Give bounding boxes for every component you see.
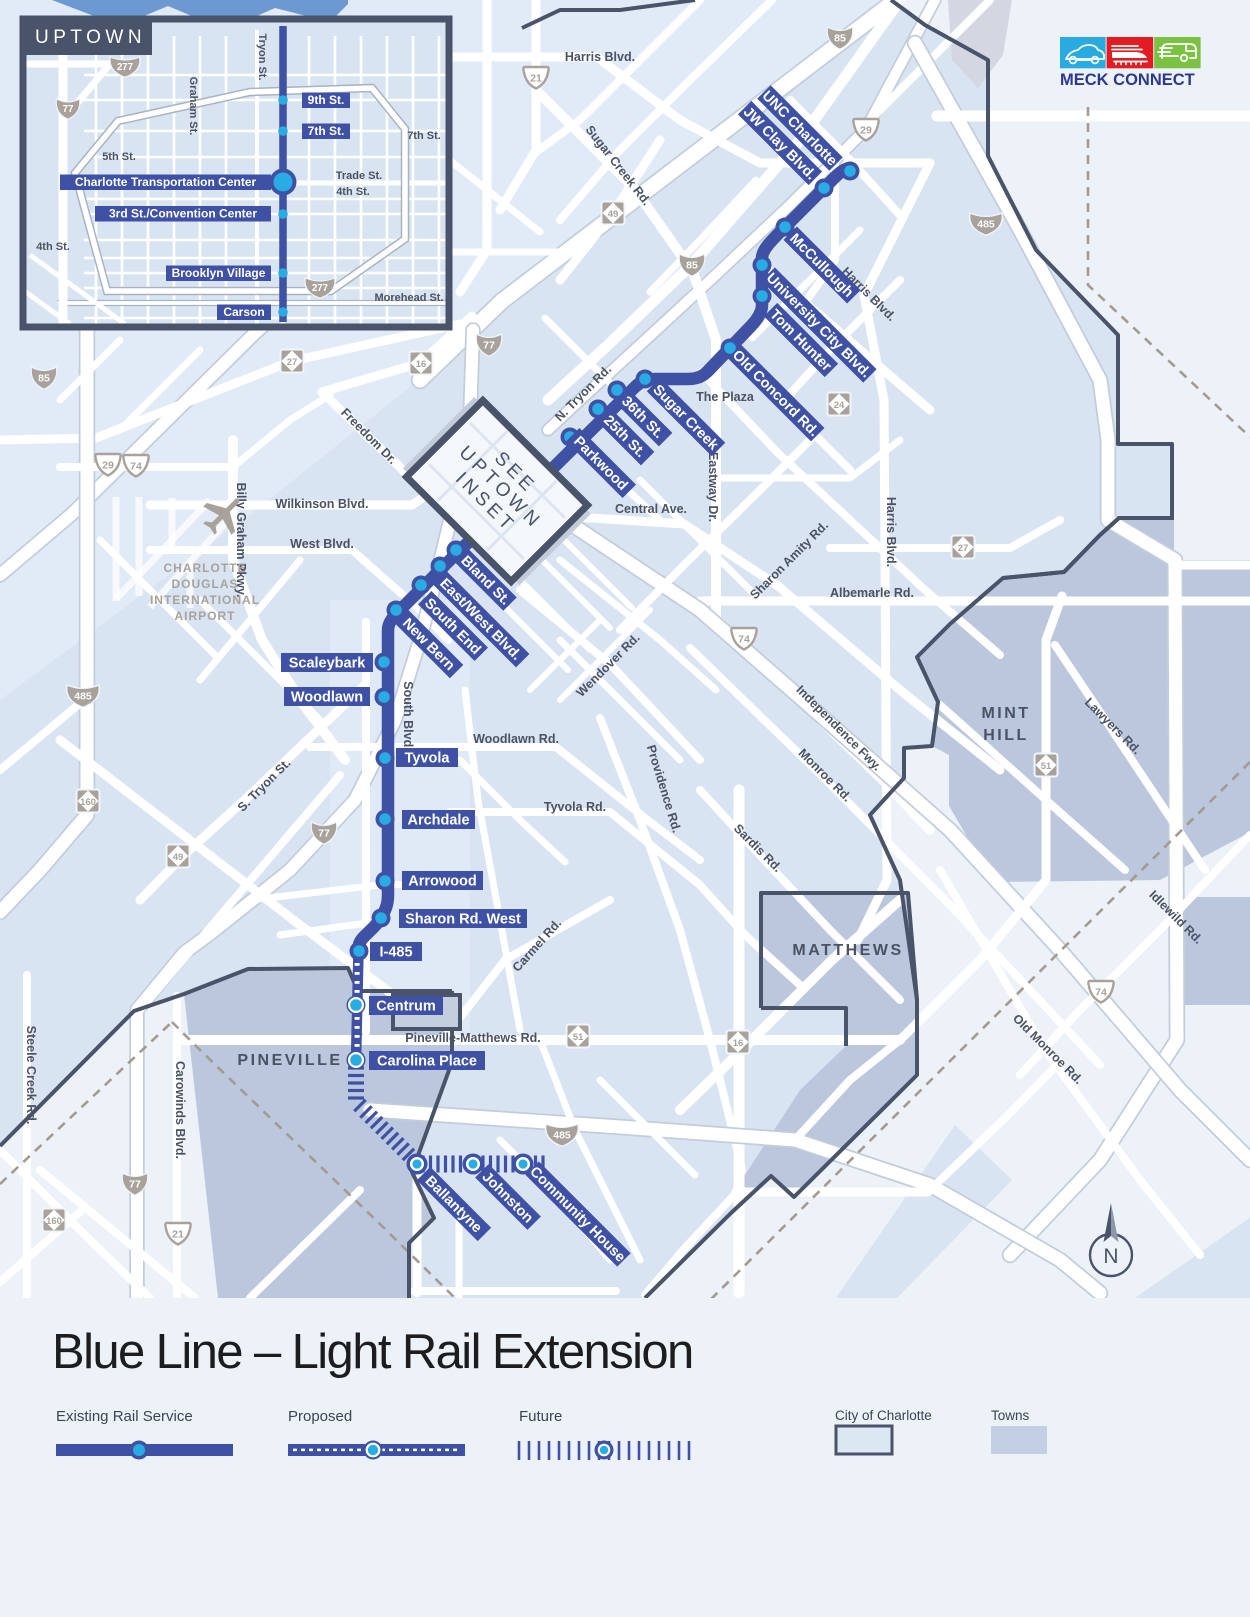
svg-text:Scaleybark: Scaleybark: [289, 656, 367, 672]
svg-text:I-485: I-485: [379, 945, 412, 961]
svg-text:51: 51: [1041, 761, 1052, 772]
svg-text:Steele Creek Rd.: Steele Creek Rd.: [24, 1026, 38, 1125]
svg-text:49: 49: [608, 209, 619, 220]
svg-text:South Blvd.: South Blvd.: [401, 681, 415, 750]
svg-text:21: 21: [172, 1228, 184, 1240]
svg-text:Harris Blvd.: Harris Blvd.: [884, 497, 898, 567]
svg-text:77: 77: [129, 1179, 141, 1191]
svg-text:160: 160: [46, 1216, 62, 1227]
svg-text:21: 21: [530, 72, 542, 84]
svg-text:24: 24: [834, 400, 845, 411]
svg-text:Eastway Dr.: Eastway Dr.: [706, 452, 720, 522]
svg-text:PINEVILLE: PINEVILLE: [237, 1052, 342, 1069]
svg-text:Morehead St.: Morehead St.: [374, 292, 443, 304]
svg-text:Arrowood: Arrowood: [408, 874, 476, 890]
svg-text:Archdale: Archdale: [407, 813, 469, 829]
svg-text:485: 485: [74, 691, 92, 703]
svg-text:Woodlawn: Woodlawn: [291, 690, 363, 706]
svg-text:27: 27: [958, 543, 969, 554]
svg-text:Harris Blvd.: Harris Blvd.: [565, 50, 635, 64]
svg-text:Carolina Place: Carolina Place: [377, 1054, 477, 1070]
svg-text:85: 85: [686, 260, 698, 272]
svg-text:4th St.: 4th St.: [36, 241, 70, 253]
svg-text:Graham St.: Graham St.: [187, 77, 199, 136]
svg-text:MECK CONNECT: MECK CONNECT: [1060, 71, 1195, 89]
svg-text:77: 77: [318, 828, 330, 840]
svg-text:Blue Line – Light Rail Extensi: Blue Line – Light Rail Extension: [52, 1325, 693, 1379]
svg-text:Proposed: Proposed: [288, 1408, 352, 1425]
svg-text:77: 77: [483, 340, 495, 352]
svg-text:74: 74: [1095, 986, 1107, 998]
svg-text:485: 485: [553, 1130, 571, 1142]
svg-text:UPTOWN: UPTOWN: [35, 27, 146, 48]
svg-text:Sharon Rd. West: Sharon Rd. West: [405, 912, 521, 928]
svg-text:Future: Future: [519, 1408, 562, 1425]
svg-text:85: 85: [38, 373, 50, 385]
svg-text:Trade St.: Trade St.: [336, 170, 382, 182]
svg-text:29: 29: [102, 459, 114, 471]
svg-text:74: 74: [130, 460, 142, 472]
svg-text:Tyvola: Tyvola: [405, 751, 451, 767]
svg-text:29: 29: [860, 124, 872, 136]
svg-text:77: 77: [63, 104, 74, 115]
svg-text:160: 160: [80, 797, 96, 808]
svg-text:277: 277: [312, 283, 328, 294]
svg-text:Centrum: Centrum: [376, 999, 436, 1015]
svg-text:51: 51: [573, 1032, 584, 1043]
svg-text:Tyvola Rd.: Tyvola Rd.: [544, 800, 606, 814]
svg-text:Albemarle Rd.: Albemarle Rd.: [830, 586, 914, 600]
svg-text:277: 277: [117, 62, 133, 73]
svg-text:27: 27: [287, 357, 298, 368]
svg-text:Brooklyn Village: Brooklyn Village: [172, 266, 266, 280]
svg-text:MATTHEWS: MATTHEWS: [792, 942, 903, 959]
svg-text:Woodlawn Rd.: Woodlawn Rd.: [473, 732, 559, 746]
svg-text:7th St.: 7th St.: [308, 124, 345, 138]
svg-text:7th St.: 7th St.: [407, 130, 441, 142]
svg-text:Central Ave.: Central Ave.: [615, 502, 687, 516]
svg-text:West Blvd.: West Blvd.: [290, 537, 354, 551]
svg-text:5th St.: 5th St.: [102, 151, 136, 163]
svg-text:Towns: Towns: [991, 1408, 1030, 1423]
svg-text:49: 49: [173, 852, 184, 863]
svg-text:16: 16: [733, 1038, 744, 1049]
svg-text:Carson: Carson: [223, 305, 264, 319]
svg-text:Wilkinson Blvd.: Wilkinson Blvd.: [276, 497, 369, 511]
svg-text:Tryon St.: Tryon St.: [256, 33, 268, 80]
svg-text:16: 16: [416, 359, 427, 370]
svg-text:Pineville-Matthews Rd.: Pineville-Matthews Rd.: [405, 1031, 540, 1045]
svg-text:Charlotte Transportation Cente: Charlotte Transportation Center: [75, 175, 257, 189]
svg-text:City of Charlotte: City of Charlotte: [835, 1408, 932, 1423]
svg-text:Existing Rail Service: Existing Rail Service: [56, 1408, 193, 1425]
svg-text:85: 85: [834, 33, 846, 45]
svg-text:74: 74: [738, 633, 750, 645]
svg-text:3rd St./Convention Center: 3rd St./Convention Center: [109, 207, 257, 221]
svg-text:Carowinds Blvd.: Carowinds Blvd.: [173, 1061, 187, 1159]
svg-text:9th St.: 9th St.: [308, 93, 345, 107]
svg-text:485: 485: [977, 219, 995, 231]
svg-text:4th St.: 4th St.: [336, 186, 370, 198]
svg-text:N: N: [1103, 1245, 1118, 1268]
svg-text:The Plaza: The Plaza: [696, 390, 755, 404]
